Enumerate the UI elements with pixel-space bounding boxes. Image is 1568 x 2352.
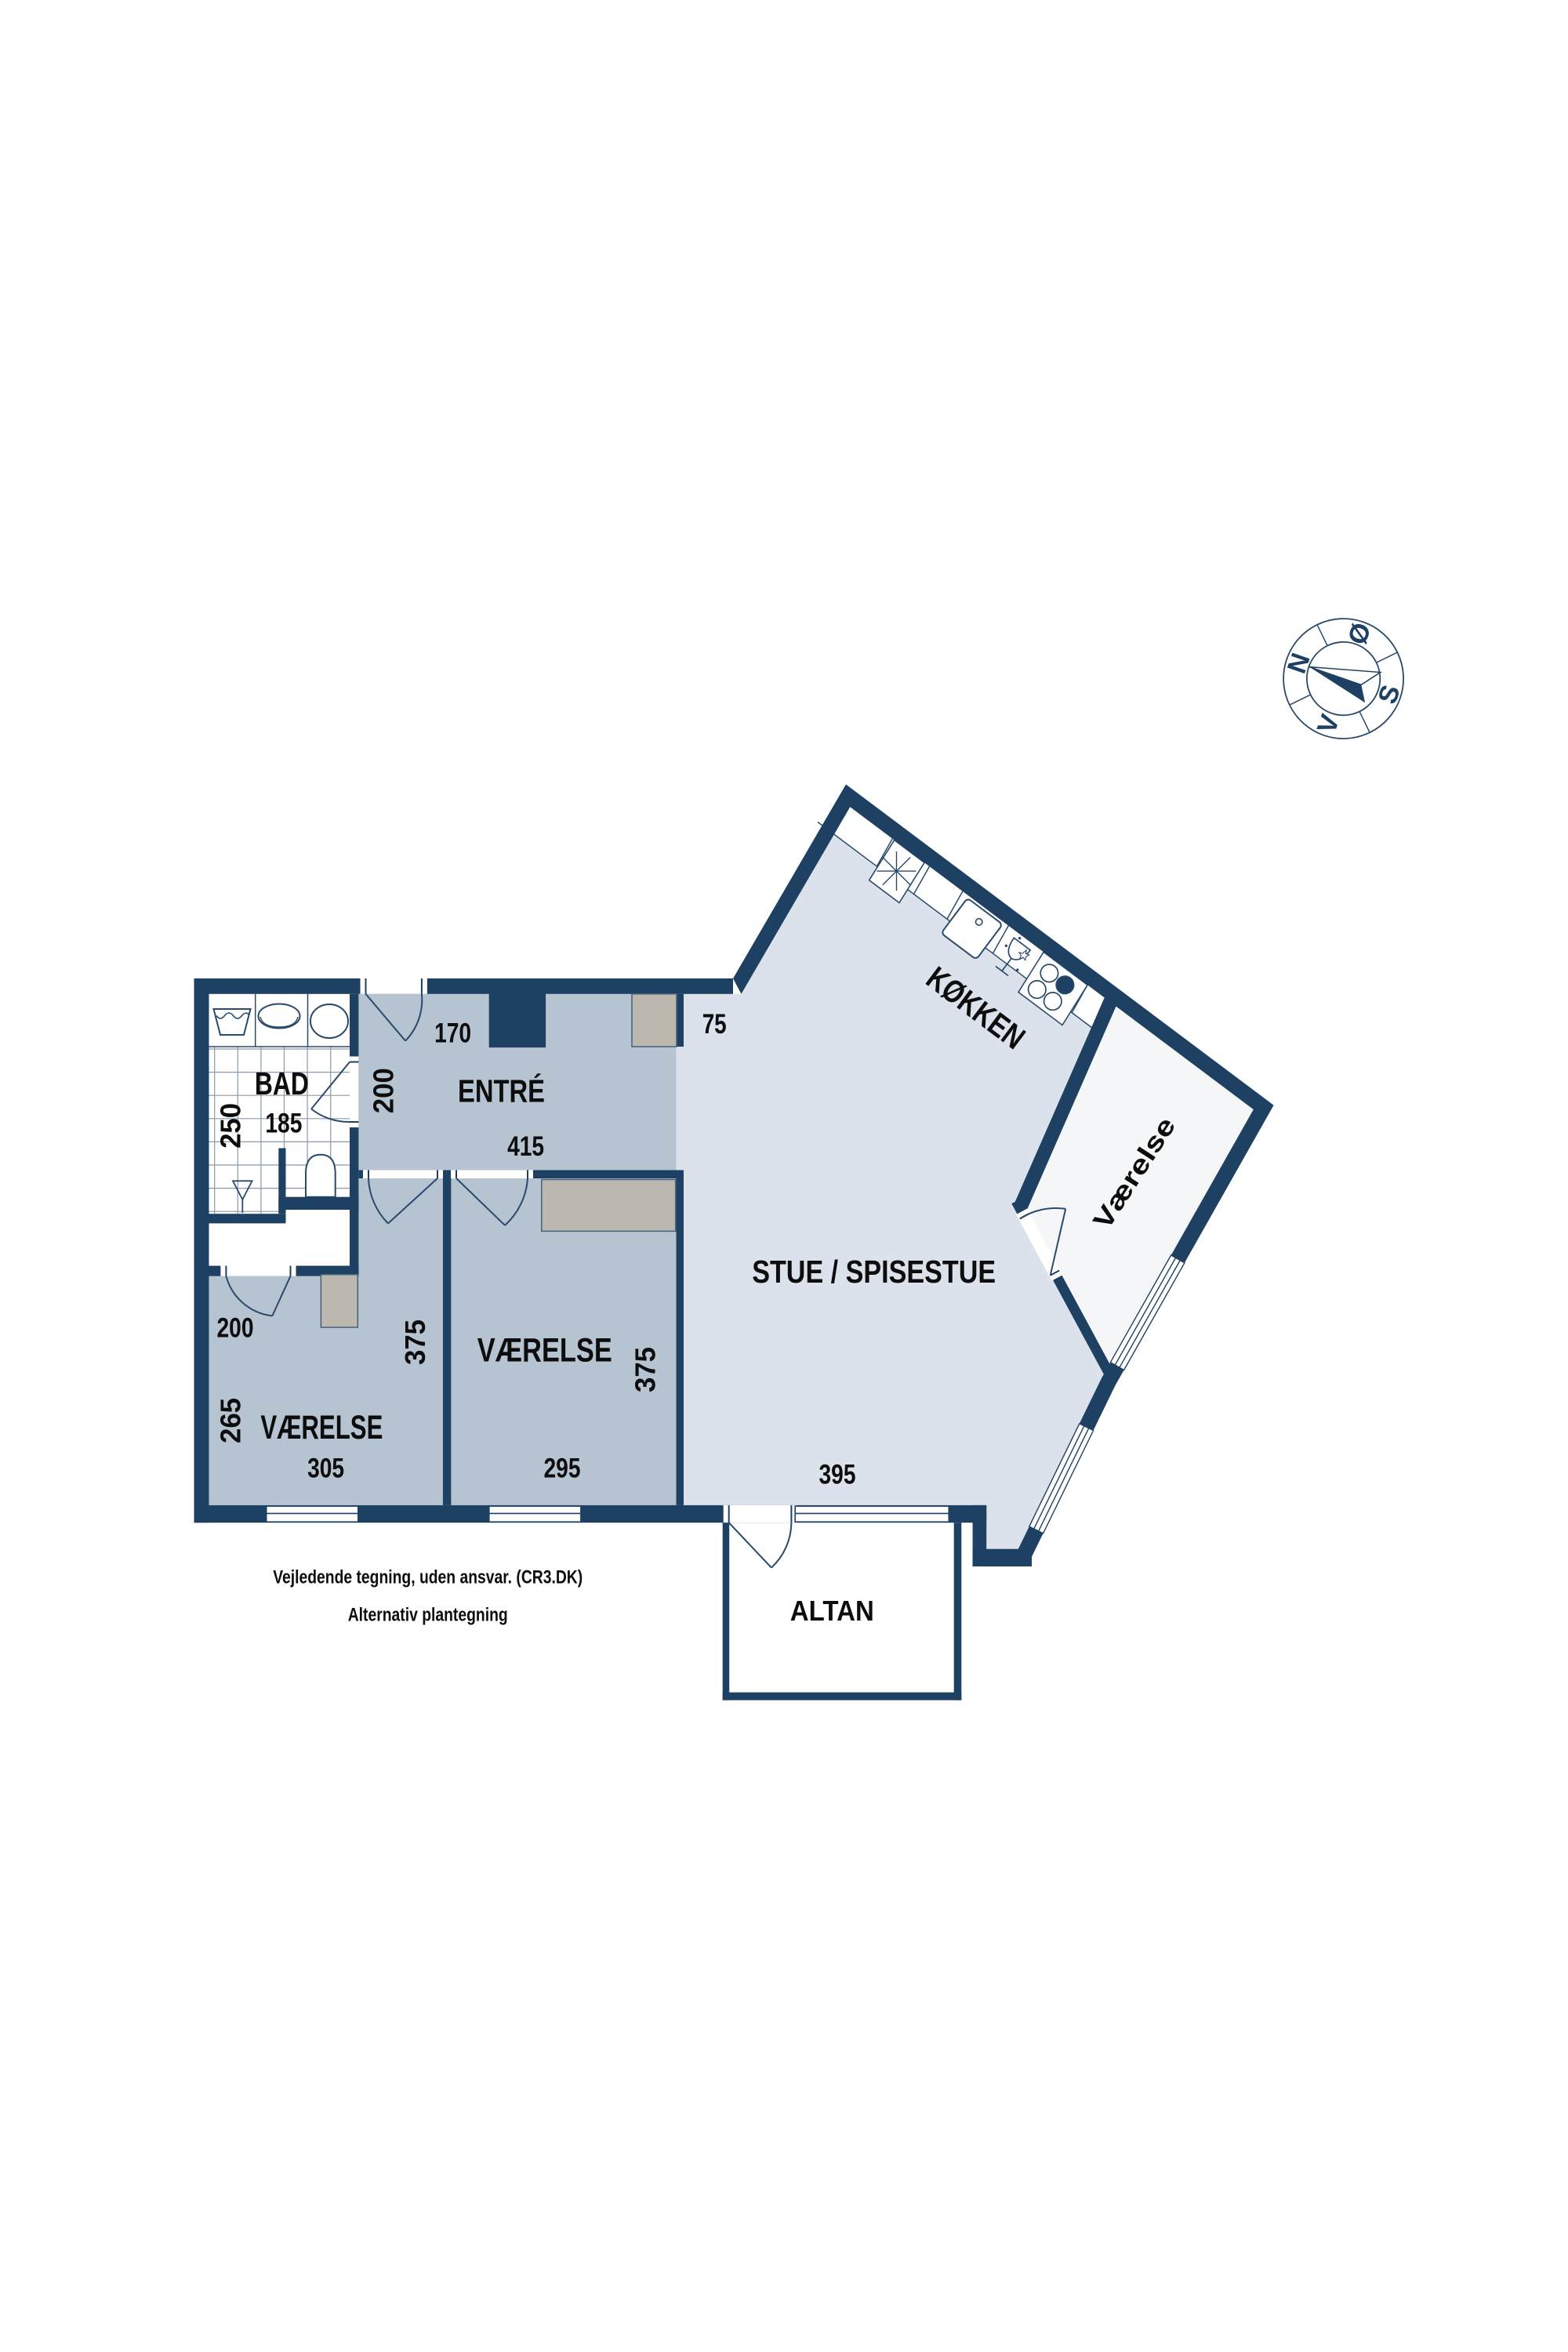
- svg-text:ENTRÉ: ENTRÉ: [458, 1073, 545, 1109]
- svg-text:VÆRELSE: VÆRELSE: [260, 1409, 383, 1446]
- svg-text:415: 415: [507, 1131, 544, 1162]
- svg-text:185: 185: [265, 1109, 302, 1139]
- svg-text:265: 265: [215, 1398, 247, 1443]
- svg-text:305: 305: [307, 1454, 344, 1484]
- svg-text:250: 250: [215, 1103, 247, 1149]
- svg-text:BAD: BAD: [255, 1065, 309, 1102]
- svg-text:200: 200: [367, 1068, 399, 1113]
- svg-text:395: 395: [819, 1460, 856, 1490]
- svg-text:VÆRELSE: VÆRELSE: [477, 1332, 612, 1370]
- svg-text:375: 375: [399, 1319, 431, 1365]
- svg-text:75: 75: [702, 1009, 727, 1040]
- svg-text:375: 375: [630, 1347, 662, 1392]
- svg-text:295: 295: [544, 1454, 581, 1484]
- svg-text:Alternativ plantegning: Alternativ plantegning: [348, 1604, 508, 1625]
- svg-text:Vejledende tegning, uden ansva: Vejledende tegning, uden ansvar. (CR3.DK…: [273, 1567, 583, 1588]
- svg-text:ALTAN: ALTAN: [790, 1595, 874, 1627]
- svg-text:170: 170: [434, 1018, 471, 1049]
- svg-text:STUE / SPISESTUE: STUE / SPISESTUE: [752, 1254, 996, 1290]
- svg-text:200: 200: [217, 1313, 254, 1344]
